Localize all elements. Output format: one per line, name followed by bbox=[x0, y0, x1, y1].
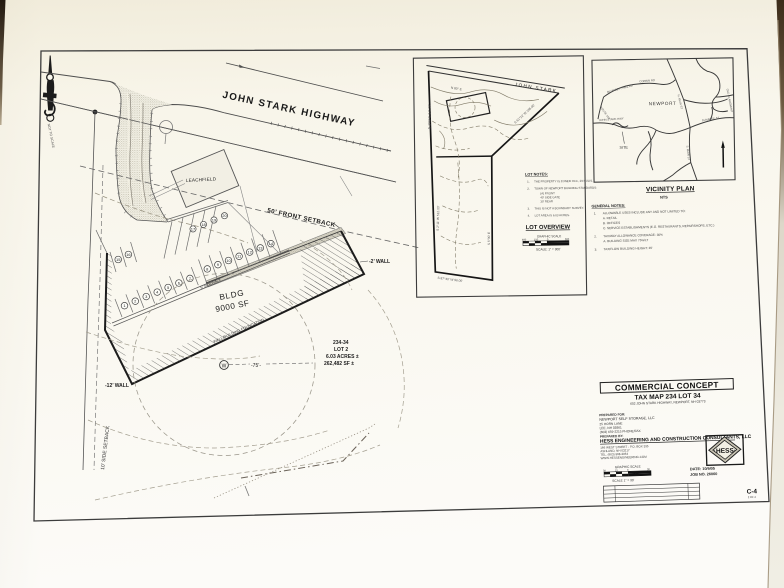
svg-text:LOT 2: LOT 2 bbox=[334, 347, 348, 353]
svg-text:-75’-: -75’- bbox=[251, 363, 261, 369]
svg-text:DATE: 10/9/05: DATE: 10/9/05 bbox=[690, 467, 715, 472]
svg-text:-12’ WALL: -12’ WALL bbox=[105, 383, 129, 389]
svg-text:LOT AREA IS 6.03 ACRES.: LOT AREA IS 6.03 ACRES. bbox=[535, 213, 571, 217]
svg-text:·HESS·: ·HESS· bbox=[714, 447, 737, 455]
svg-text:W: W bbox=[222, 363, 227, 369]
svg-text:13: 13 bbox=[258, 245, 263, 250]
svg-text:10: 10 bbox=[226, 258, 231, 263]
svg-text:16: 16 bbox=[126, 252, 131, 257]
svg-text:SCALE 1” = 30’: SCALE 1” = 30’ bbox=[612, 478, 634, 483]
svg-text:1.: 1. bbox=[527, 180, 530, 184]
svg-text:2.: 2. bbox=[527, 187, 530, 191]
svg-text:THIS IS NOT A BOUNDARY SURVEY.: THIS IS NOT A BOUNDARY SURVEY. bbox=[534, 206, 584, 211]
svg-text:LOT NOTES:: LOT NOTES: bbox=[525, 172, 548, 176]
svg-text:2 OF 4: 2 OF 4 bbox=[748, 495, 757, 499]
svg-text:LOT OVERVIEW: LOT OVERVIEW bbox=[526, 225, 571, 232]
svg-text:NEWPORT: NEWPORT bbox=[649, 101, 677, 106]
svg-text:N 1°02' E 345.00': N 1°02' E 345.00' bbox=[427, 104, 431, 129]
svg-text:2.: 2. bbox=[594, 234, 597, 238]
svg-text:VICINITY PLAN: VICINITY PLAN bbox=[646, 185, 695, 193]
svg-text:PREPARED BY:: PREPARED BY: bbox=[600, 434, 624, 439]
svg-text:C-4: C-4 bbox=[747, 488, 758, 495]
svg-text:SITE: SITE bbox=[619, 146, 628, 150]
svg-text:20: 20 bbox=[222, 213, 227, 218]
svg-text:234-34: 234-34 bbox=[333, 340, 349, 346]
svg-text:30’ REAR: 30’ REAR bbox=[540, 199, 553, 203]
svg-text:18: 18 bbox=[201, 222, 206, 227]
svg-text:4.: 4. bbox=[528, 214, 531, 218]
svg-text:17: 17 bbox=[191, 226, 196, 231]
svg-text:NTS: NTS bbox=[660, 195, 668, 199]
svg-text:S 2°11' W 512.00': S 2°11' W 512.00' bbox=[436, 205, 441, 231]
svg-text:JOB NO. 26060: JOB NO. 26060 bbox=[690, 472, 717, 477]
svg-text:19: 19 bbox=[212, 217, 217, 222]
svg-text:1.: 1. bbox=[594, 211, 597, 215]
svg-text:3.: 3. bbox=[595, 247, 598, 251]
svg-text:12: 12 bbox=[247, 250, 252, 255]
svg-text:3.: 3. bbox=[527, 207, 530, 211]
svg-text:S 5°30' E: S 5°30' E bbox=[487, 232, 491, 245]
svg-text:A. RETAIL: A. RETAIL bbox=[603, 216, 618, 220]
svg-text:THE PROPERTY IS ZONED HCC, 29: THE PROPERTY IS ZONED HCC, 29 HULIS. bbox=[534, 179, 593, 184]
svg-text:-2’ WALL: -2’ WALL bbox=[369, 259, 390, 265]
svg-text:B. OFFICES: B. OFFICES bbox=[603, 221, 620, 225]
svg-text:15: 15 bbox=[116, 257, 121, 262]
svg-text:6.03 ACRES ±: 6.03 ACRES ± bbox=[326, 354, 359, 360]
svg-text:262,482 SF ±: 262,482 SF ± bbox=[324, 361, 354, 367]
svg-text:SCALE: 1” = 300’: SCALE: 1” = 300’ bbox=[536, 247, 561, 251]
svg-text:GRAPHIC SCALE: GRAPHIC SCALE bbox=[537, 234, 561, 238]
